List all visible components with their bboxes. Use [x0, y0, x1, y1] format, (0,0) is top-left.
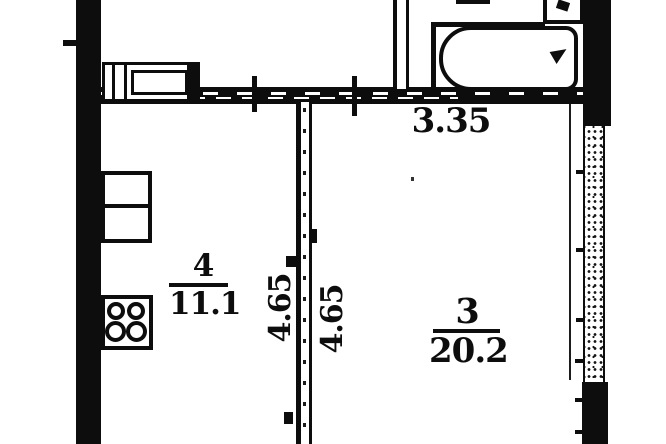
wall-tick	[576, 170, 585, 174]
room-3-number: 3	[437, 294, 497, 329]
floor-plan: 3.35 4.65 4.65 4 11.1 3 20.2	[0, 0, 666, 444]
dimension-label-left: 4.65	[266, 268, 296, 348]
wall-scan-speckle	[303, 102, 306, 444]
stove-burner-icon	[127, 302, 145, 320]
exterior-wall-tick	[63, 40, 77, 46]
dimension-tick	[352, 76, 357, 116]
right-exterior-wall-lower	[582, 382, 608, 444]
cropped-wall-fragment	[456, 0, 490, 4]
right-exterior-wall-upper	[583, 0, 611, 126]
wall-tick	[575, 398, 585, 402]
wall-tick	[576, 318, 585, 322]
room-4-number: 4	[174, 251, 232, 282]
window-line	[569, 104, 571, 380]
wall-tick	[575, 430, 585, 434]
left-exterior-wall	[76, 0, 101, 444]
interior-partition-wall	[296, 102, 312, 444]
scan-speck	[411, 177, 414, 181]
dimension-tick	[284, 412, 293, 424]
hallway-partition-wall	[393, 0, 409, 89]
counter-end-fill	[187, 65, 198, 99]
cabinet-divider	[104, 204, 149, 208]
counter-divider	[124, 65, 127, 99]
stove-burner-icon	[105, 321, 126, 342]
counter-sink	[131, 70, 188, 95]
stove-burner-icon	[107, 302, 125, 320]
wall-tick	[575, 359, 585, 363]
room-4-area: 11.1	[169, 289, 229, 320]
wall-tick	[576, 248, 585, 252]
dimension-tick	[252, 76, 257, 112]
dimension-tick	[286, 256, 298, 267]
dimension-label-right: 4.65	[318, 279, 348, 359]
dimension-tick	[309, 229, 317, 243]
dimension-label-top: 3.35	[405, 104, 497, 138]
bathroom-wall-left	[431, 22, 436, 88]
room-3-area: 20.2	[429, 334, 503, 368]
counter-divider	[112, 65, 115, 99]
stove-burner-icon	[126, 321, 147, 342]
balcony-stippled-wall	[583, 126, 605, 382]
